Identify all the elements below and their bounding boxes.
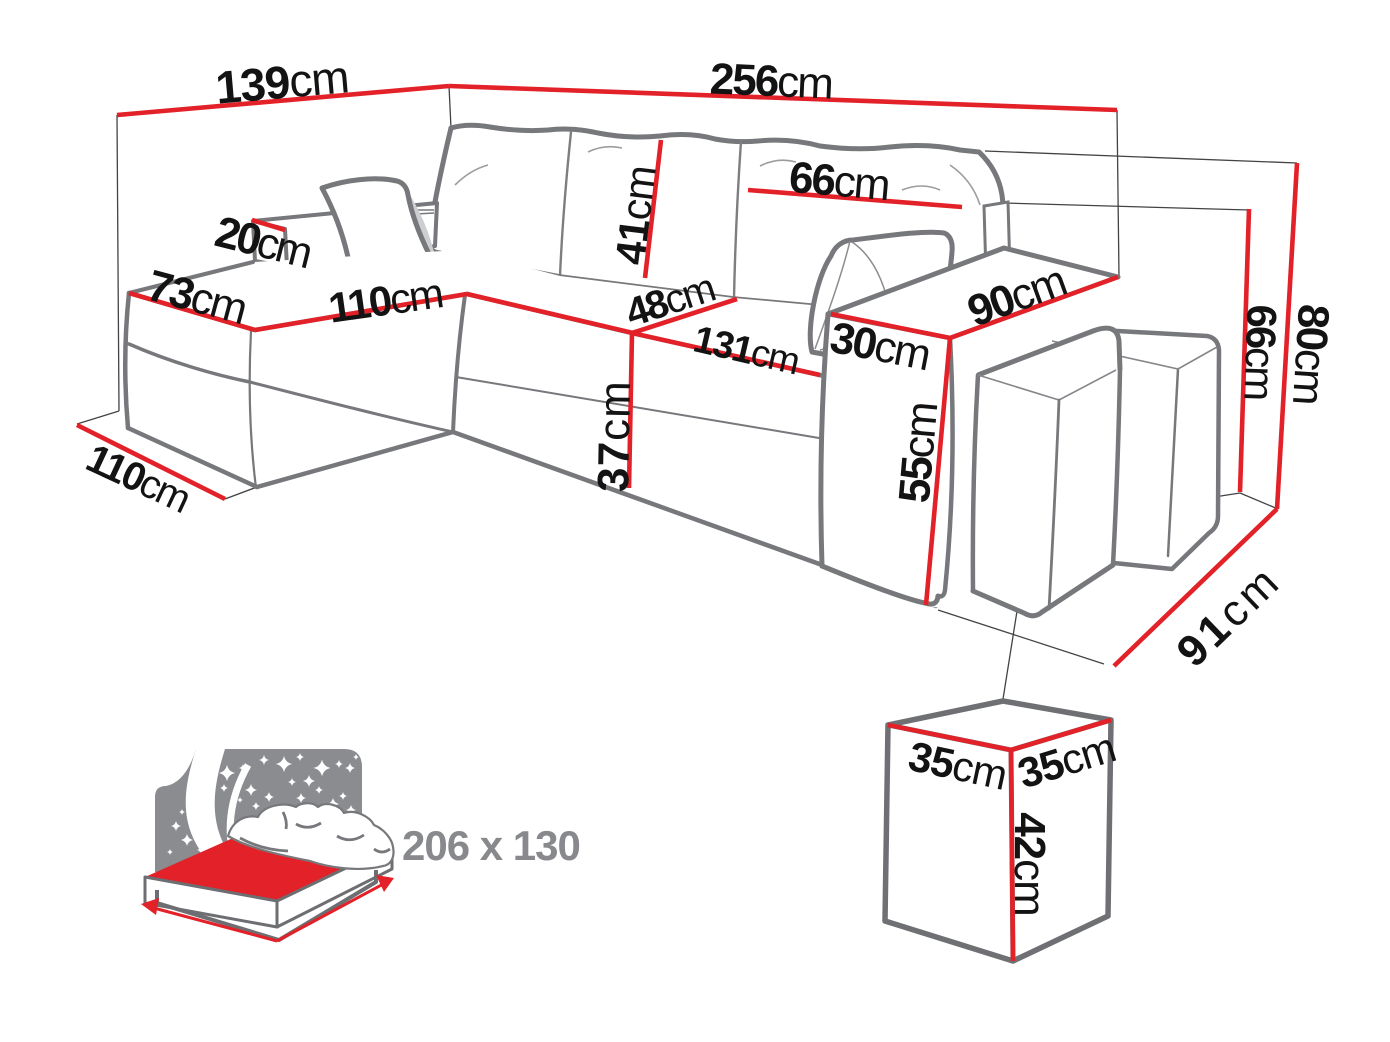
svg-text:256cm: 256cm [709,54,833,108]
svg-text:55cm: 55cm [890,401,947,505]
svg-text:66cm: 66cm [1235,304,1285,400]
svg-text:80cm: 80cm [1283,303,1338,405]
svg-text:37cm: 37cm [589,380,640,492]
svg-text:66cm: 66cm [787,153,891,210]
svg-text:42cm: 42cm [1005,812,1054,916]
svg-text:206 x 130: 206 x 130 [402,822,580,869]
